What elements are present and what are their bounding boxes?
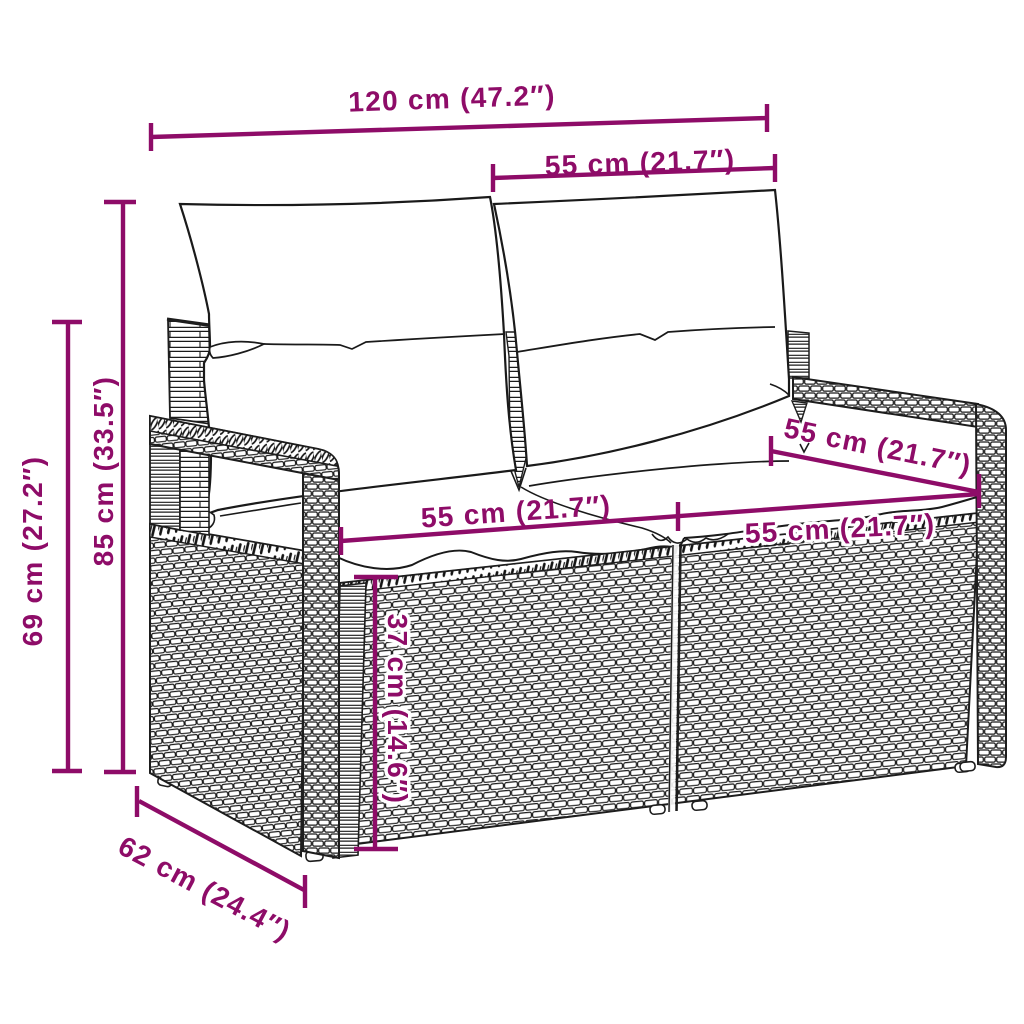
svg-text:37 cm (14.6″): 37 cm (14.6″) (382, 614, 413, 805)
svg-text:69 cm (27.2″): 69 cm (27.2″) (17, 456, 48, 647)
svg-text:85 cm (33.5″): 85 cm (33.5″) (88, 376, 119, 567)
